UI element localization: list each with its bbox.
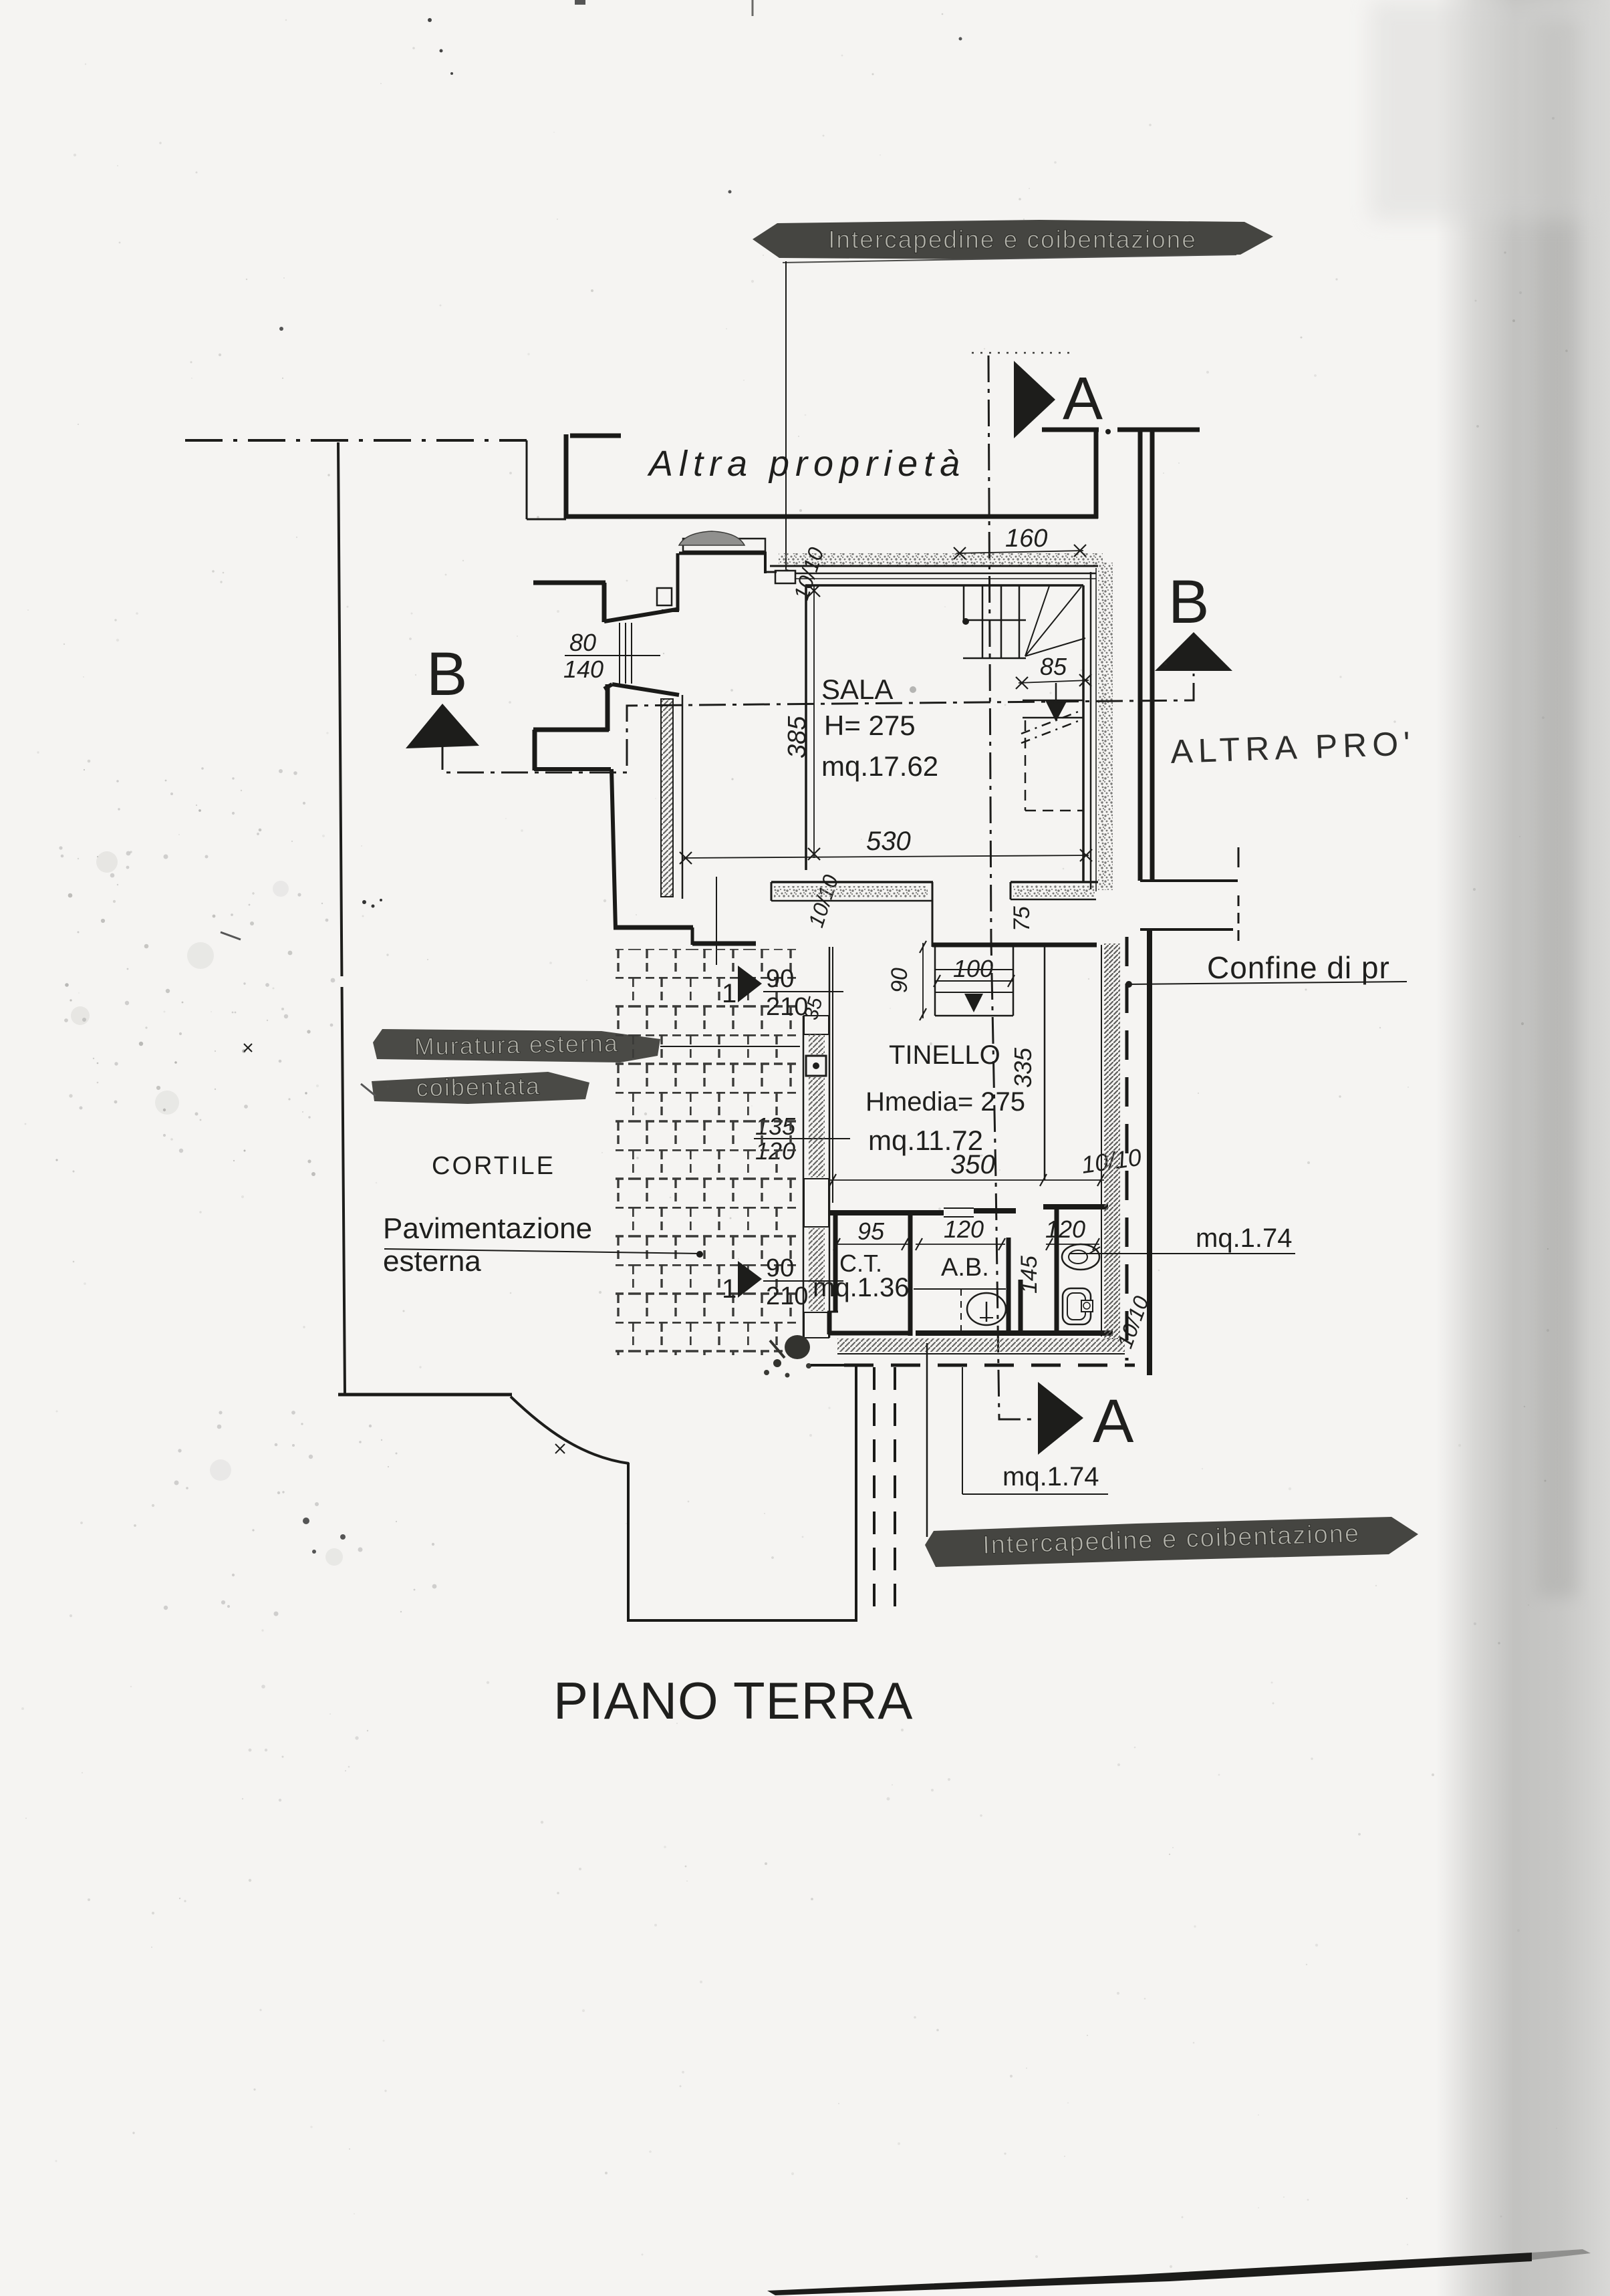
- svg-text:coibentata: coibentata: [416, 1072, 541, 1101]
- svg-text:385: 385: [783, 716, 811, 758]
- svg-text:90: 90: [766, 1254, 794, 1282]
- svg-text:90: 90: [887, 968, 912, 993]
- svg-text:SALA: SALA: [821, 674, 893, 705]
- svg-text:A: A: [1063, 366, 1103, 432]
- svg-text:160: 160: [1005, 525, 1047, 553]
- svg-text:1: 1: [722, 1274, 736, 1304]
- svg-text:CORTILE: CORTILE: [432, 1152, 555, 1180]
- svg-text:350: 350: [950, 1150, 995, 1179]
- svg-text:140: 140: [563, 656, 603, 683]
- svg-text:145: 145: [1017, 1256, 1042, 1294]
- svg-text:530: 530: [866, 827, 911, 856]
- svg-text:H= 275: H= 275: [824, 710, 916, 741]
- svg-text:TINELLO: TINELLO: [889, 1040, 1000, 1070]
- svg-text:mq.1.36: mq.1.36: [813, 1273, 910, 1302]
- svg-text:mq.1.74: mq.1.74: [1002, 1462, 1099, 1491]
- svg-text:210: 210: [766, 993, 808, 1021]
- svg-text:Pavimentazione: Pavimentazione: [383, 1212, 592, 1245]
- svg-text:80: 80: [569, 629, 596, 656]
- svg-text:mq.1.74: mq.1.74: [1196, 1224, 1293, 1253]
- svg-text:Altra proprietà: Altra proprietà: [647, 444, 966, 484]
- svg-text:95: 95: [857, 1217, 885, 1245]
- svg-text:Confine di pr: Confine di pr: [1207, 950, 1390, 985]
- svg-text:100: 100: [953, 955, 993, 982]
- svg-text:A.B.: A.B.: [941, 1254, 989, 1282]
- svg-text:Muratura esterna: Muratura esterna: [414, 1029, 619, 1060]
- svg-text:335: 335: [1009, 1047, 1037, 1088]
- svg-text:75: 75: [1009, 906, 1035, 931]
- svg-text:90: 90: [766, 965, 794, 993]
- svg-text:120: 120: [944, 1215, 984, 1243]
- svg-text:210: 210: [766, 1282, 808, 1310]
- svg-text:Hmedia= 275: Hmedia= 275: [865, 1087, 1025, 1117]
- svg-text:85: 85: [1040, 653, 1067, 680]
- svg-text:C.T.: C.T.: [839, 1250, 882, 1277]
- svg-text:Intercapedine e coibentazion: Intercapedine e coibentazione: [828, 226, 1197, 253]
- svg-text:120: 120: [1045, 1215, 1085, 1243]
- svg-text:A: A: [1093, 1387, 1134, 1455]
- svg-text:mq.17.62: mq.17.62: [821, 750, 938, 782]
- svg-text:B: B: [426, 640, 467, 708]
- svg-text:PIANO TERRA: PIANO TERRA: [553, 1671, 913, 1730]
- svg-text:1: 1: [722, 979, 736, 1008]
- svg-text:B: B: [1168, 568, 1209, 636]
